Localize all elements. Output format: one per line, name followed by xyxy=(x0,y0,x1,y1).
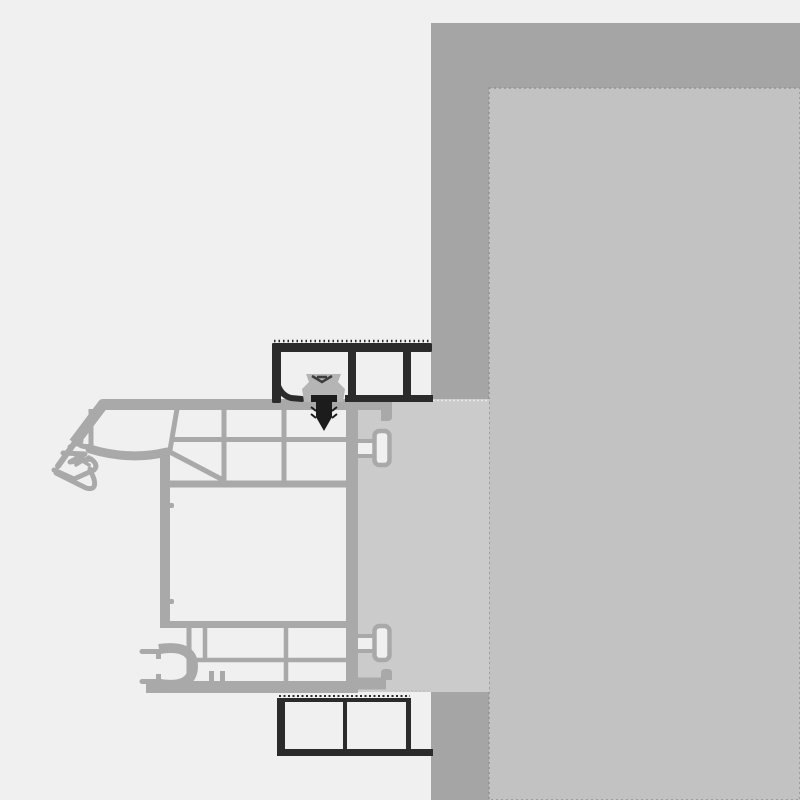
top-angle-divider xyxy=(348,350,356,402)
lug-top-hook xyxy=(381,409,392,421)
bottom-tooth-a xyxy=(209,671,214,683)
lug-bottom-bar xyxy=(352,678,386,690)
bottom-angle-bottom-bar xyxy=(277,749,433,756)
chamber-rib-lower xyxy=(164,599,174,604)
bottom-tooth-b xyxy=(220,671,225,683)
wall-inner-panel xyxy=(489,88,800,800)
cross-section-drawing xyxy=(0,0,800,800)
bottom-angle-divider xyxy=(343,700,347,750)
bottom-angle-right-leg xyxy=(406,700,411,750)
lug-low-head xyxy=(375,626,390,660)
lug-mid-head xyxy=(375,431,390,465)
top-angle-bottom-bar xyxy=(345,395,433,402)
chamber-rib-upper xyxy=(164,503,174,508)
lug-bottom-hook xyxy=(381,669,392,680)
drawing-stage xyxy=(0,0,800,800)
top-angle-right-leg xyxy=(403,350,411,402)
bottom-angle-left-leg xyxy=(277,698,285,755)
